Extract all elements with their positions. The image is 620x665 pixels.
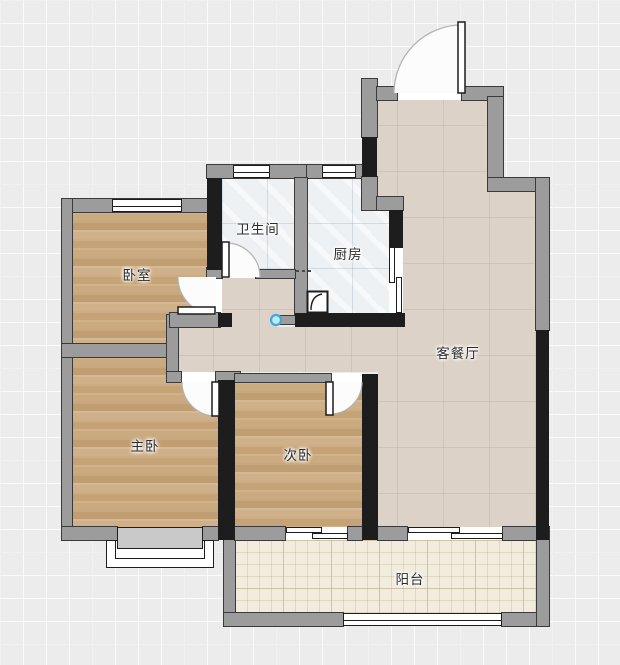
wall-master-bottom-b[interactable] xyxy=(203,527,218,540)
room-floor-living-mid[interactable] xyxy=(403,178,536,330)
wall-vestibule[interactable] xyxy=(170,313,220,327)
window-bathroom[interactable] xyxy=(233,165,270,178)
wall-entry-top-left[interactable] xyxy=(377,87,397,100)
wall-bottom-c[interactable] xyxy=(378,527,407,540)
wall-master-second-divider[interactable] xyxy=(218,380,235,540)
entry-door-leaf[interactable] xyxy=(458,22,465,93)
wall-balcony-right[interactable] xyxy=(537,540,549,626)
wall-bathroom-bottom[interactable] xyxy=(256,270,295,278)
window-bedroom[interactable] xyxy=(112,199,182,212)
wall-kitchen-bottom-black[interactable] xyxy=(295,313,405,327)
room-label-bedroom: 卧室 xyxy=(123,264,152,284)
bathroom-door-opening xyxy=(222,269,260,278)
room-label-second-bedroom: 次卧 xyxy=(284,444,313,464)
wall-niche-right[interactable] xyxy=(488,97,503,180)
wall-bath-kitchen-divider[interactable] xyxy=(295,178,307,315)
wall-vestibule-black[interactable] xyxy=(218,313,232,327)
wall-corridor-bottom-a[interactable] xyxy=(167,372,181,382)
entry-door-swing xyxy=(394,25,462,93)
room-label-master-bedroom: 主卧 xyxy=(131,435,160,455)
entry-door-arc xyxy=(394,25,462,93)
kitchen-slider-panel-1[interactable] xyxy=(389,247,395,283)
wall-right-upper[interactable] xyxy=(536,178,549,330)
wall-kitchen-right-black[interactable] xyxy=(389,210,403,248)
wall-bottom-black[interactable] xyxy=(362,527,378,540)
wall-right-lower-black[interactable] xyxy=(536,330,549,540)
hall-floor-corridor[interactable] xyxy=(178,327,378,372)
room-label-bathroom: 卫生间 xyxy=(236,218,280,238)
room-label-kitchen: 厨房 xyxy=(334,243,363,263)
room-floor-balcony[interactable] xyxy=(235,540,537,613)
window-kitchen[interactable] xyxy=(322,165,356,178)
wall-bottom-b[interactable] xyxy=(348,527,362,540)
master-door-opening xyxy=(181,372,216,382)
wall-entry-left-black[interactable] xyxy=(362,137,377,177)
bay-window-sill xyxy=(117,527,203,549)
wall-master-bottom-a[interactable] xyxy=(62,527,117,540)
wall-entry-left-upper[interactable] xyxy=(362,79,377,137)
wall-bottom-a[interactable] xyxy=(235,527,285,540)
wall-second-bedroom-top[interactable] xyxy=(235,374,331,382)
floorplan-canvas: 卧室 卫生间 厨房 客餐厅 主卧 次卧 阳台 xyxy=(0,0,620,665)
window-balcony[interactable] xyxy=(343,613,502,626)
hall-floor-passage[interactable] xyxy=(232,315,277,327)
room-label-living-dining: 客餐厅 xyxy=(436,342,480,362)
balcony-slider-a-panel-2[interactable] xyxy=(312,533,348,539)
wall-balcony-bottom-a[interactable] xyxy=(224,613,343,626)
wall-left[interactable] xyxy=(62,199,72,540)
room-label-balcony: 阳台 xyxy=(396,568,425,588)
wall-stub-point[interactable] xyxy=(277,316,296,324)
entry-door-opening xyxy=(397,85,462,100)
kitchen-slider-panel-2[interactable] xyxy=(396,277,402,313)
wall-entry-left-lower[interactable] xyxy=(362,177,377,210)
wall-bedroom-bottom[interactable] xyxy=(62,344,178,357)
bedroom-door-opening xyxy=(207,278,222,313)
balcony-slider-b-panel-2[interactable] xyxy=(451,533,503,539)
wall-kitchen-jog[interactable] xyxy=(377,197,403,210)
wall-bedroom-right-black[interactable] xyxy=(207,178,222,270)
second-door-opening xyxy=(331,373,362,382)
wall-second-living-divider[interactable] xyxy=(362,374,378,540)
hall-floor-vestibule[interactable] xyxy=(222,278,295,315)
